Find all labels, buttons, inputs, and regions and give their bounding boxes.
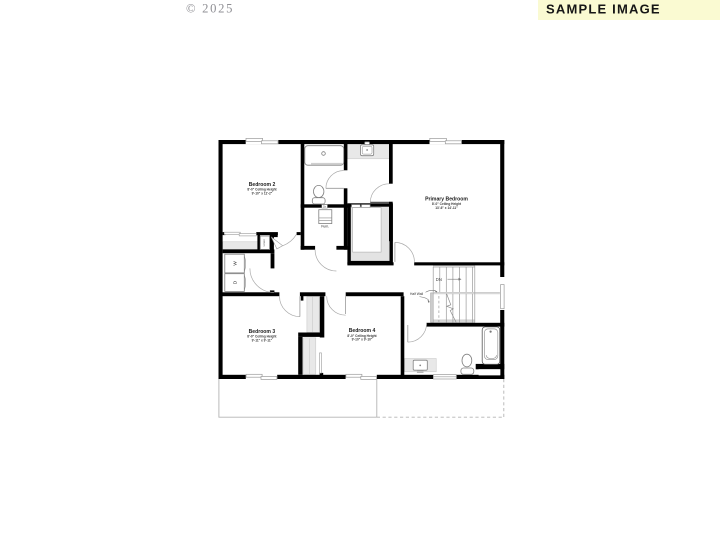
svg-text:9'-11" x 9'-11": 9'-11" x 9'-11" (252, 338, 273, 342)
svg-text:9'-10" x 11'-2": 9'-10" x 11'-2" (252, 192, 273, 196)
svg-text:W: W (233, 261, 238, 266)
svg-text:13'-6" x 14'-11": 13'-6" x 14'-11" (435, 206, 458, 210)
svg-text:DN: DN (436, 277, 442, 282)
svg-text:9'-10" x 9'-10": 9'-10" x 9'-10" (352, 338, 373, 342)
svg-text:Furn.: Furn. (321, 225, 329, 229)
svg-text:Half Wall: Half Wall (410, 292, 423, 296)
svg-text:© 2025: © 2025 (186, 2, 234, 16)
svg-text:Linen: Linen (262, 239, 266, 247)
svg-text:SAMPLE IMAGE: SAMPLE IMAGE (546, 1, 661, 16)
